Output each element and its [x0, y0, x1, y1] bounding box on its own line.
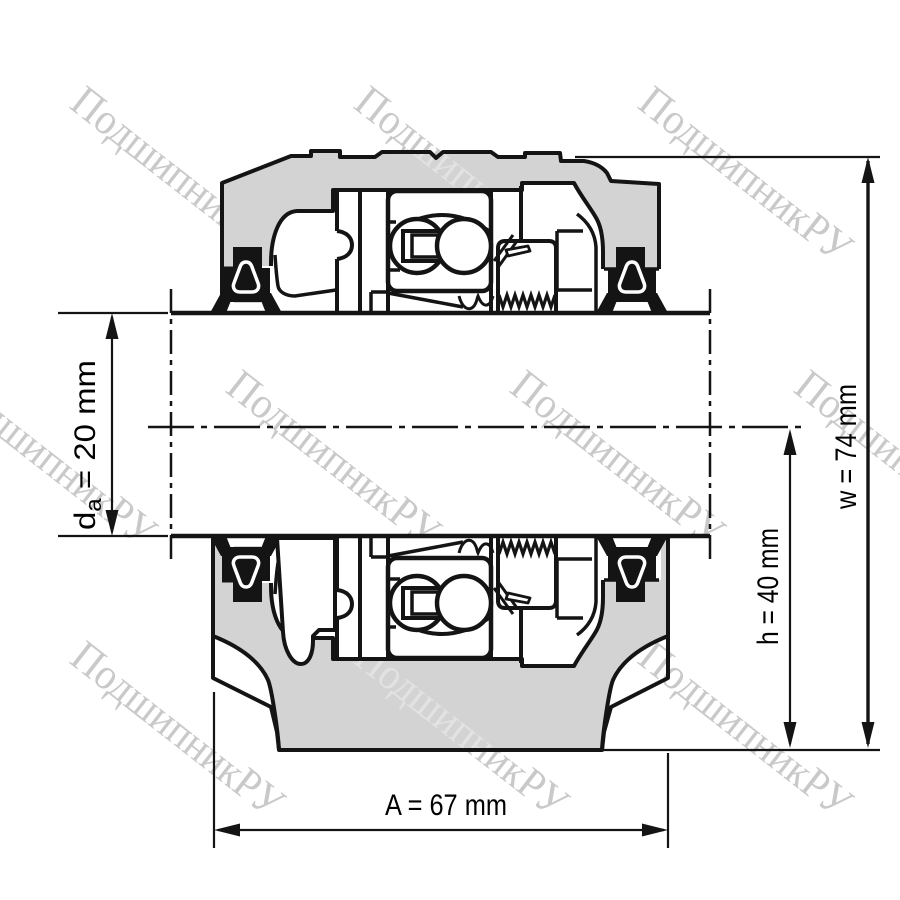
- svg-text:h = 40 mm: h = 40 mm: [752, 528, 785, 645]
- svg-text:w = 74 mm: w = 74 mm: [830, 384, 863, 510]
- svg-text:A = 67 mm: A = 67 mm: [385, 789, 507, 822]
